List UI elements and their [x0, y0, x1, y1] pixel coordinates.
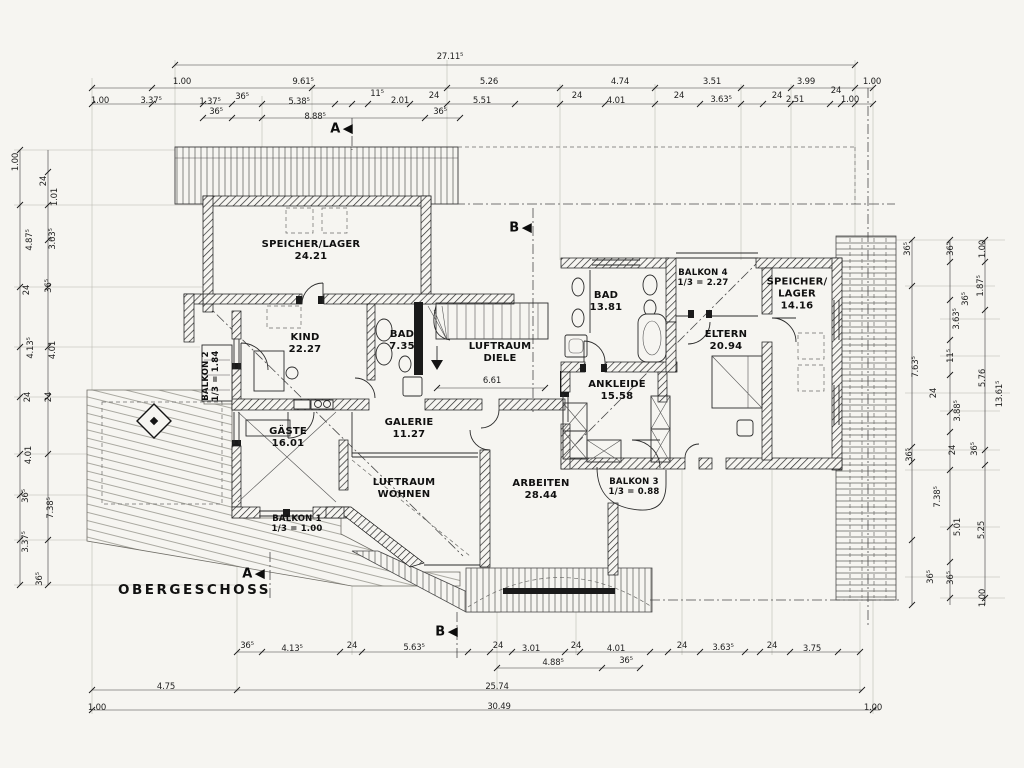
floor-title: OBERGESCHOSS: [118, 582, 271, 598]
windows: [234, 260, 839, 444]
shower-icon: [403, 377, 422, 396]
sink-icon: [376, 343, 392, 365]
floorplan-drawing: [0, 0, 1024, 768]
sink-icon: [572, 278, 584, 296]
toilet-icon: [399, 356, 411, 372]
stair-direction-arrow: [431, 360, 443, 370]
sink-icon: [572, 309, 584, 327]
staircase: [428, 303, 548, 370]
sink-icon: [376, 319, 392, 341]
roof-band-top: [175, 147, 458, 204]
wardrobes: [563, 396, 670, 462]
drawing-sheet: SPEICHER/LAGER 24.21KIND 22.27BAD 7.35LU…: [0, 0, 1024, 768]
roof-band-right: [836, 236, 896, 600]
doors: [241, 283, 796, 468]
fixtures: [238, 208, 824, 556]
toilet-icon: [643, 275, 657, 295]
